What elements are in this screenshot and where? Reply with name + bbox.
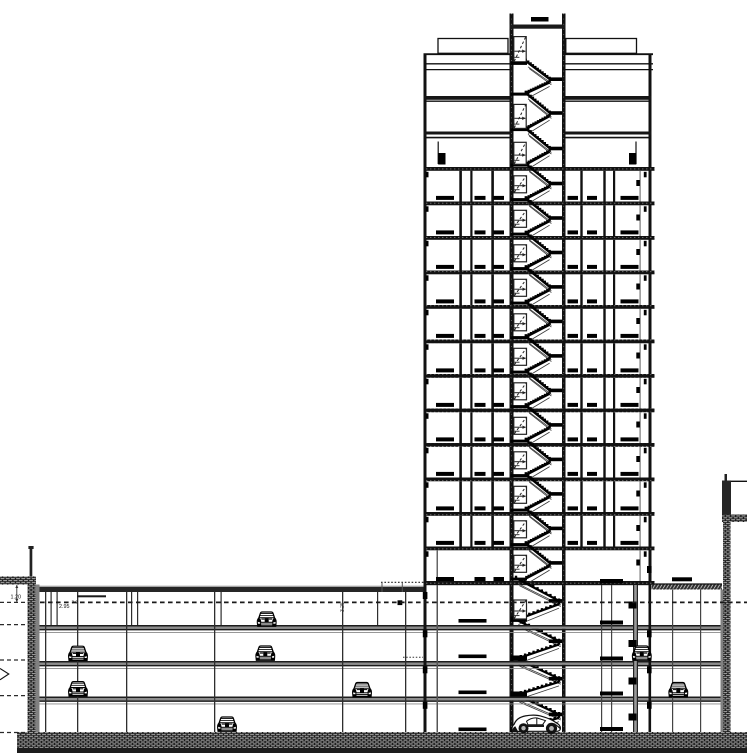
svg-text:2.95: 2.95 [59, 604, 70, 610]
svg-text:1.20: 1.20 [11, 595, 22, 601]
svg-text:3.2: 3.2 [72, 600, 79, 605]
svg-text:3.25: 3.25 [340, 602, 346, 612]
